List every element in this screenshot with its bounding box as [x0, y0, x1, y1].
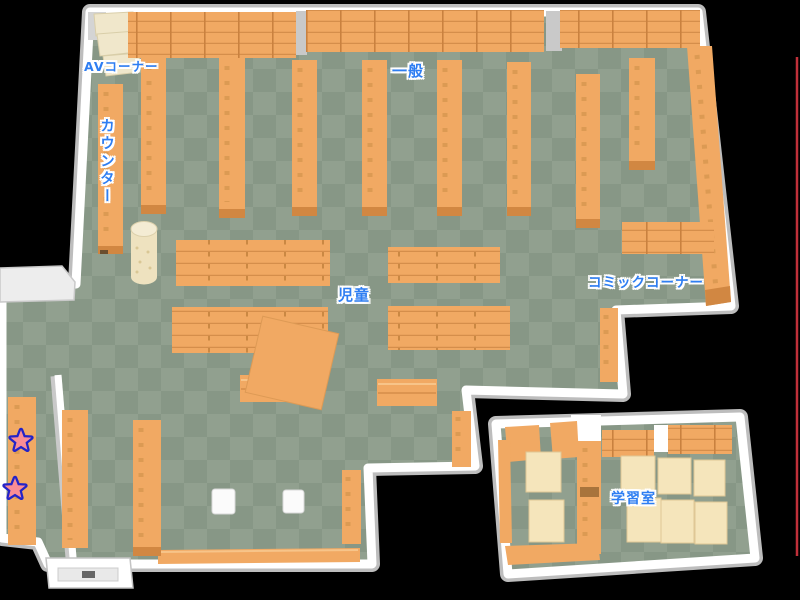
study-shelf-block — [602, 430, 654, 457]
study-table — [526, 452, 561, 492]
wall-bookshelf — [600, 308, 618, 382]
bookshelf-row — [133, 420, 161, 556]
bookshelf-row — [507, 62, 531, 216]
study-table — [529, 500, 564, 542]
bookshelf-row — [629, 58, 655, 170]
label-comic-corner: コミックコーナー — [588, 271, 704, 291]
activity-table — [245, 316, 339, 410]
study-room-divider — [577, 441, 601, 554]
stool — [283, 490, 304, 513]
bookshelf-row — [141, 58, 166, 214]
magazine-shelf — [8, 397, 36, 545]
label-general: 一般 — [392, 60, 424, 81]
children-shelf-block — [388, 247, 500, 283]
wall-corner-block — [0, 266, 75, 302]
wall-bookshelf-block — [128, 12, 296, 58]
bookshelf-row — [219, 58, 245, 218]
wall-face — [296, 11, 307, 55]
floor-map-canvas — [0, 0, 800, 600]
wall-bookshelf — [452, 411, 471, 467]
comic-shelf-block — [622, 222, 714, 254]
wall-bookshelf — [342, 470, 361, 544]
study-table — [695, 502, 727, 544]
children-shelf-block — [176, 240, 330, 286]
wall-shelf-strip — [158, 548, 360, 564]
library-floor-map: AVコーナー カウンター 一般 児童 コミックコーナー 学習室 — [0, 0, 800, 600]
label-av-corner: AVコーナー — [84, 56, 159, 75]
bench — [377, 379, 437, 406]
study-table — [658, 458, 691, 494]
study-table — [661, 500, 694, 543]
label-study-room: 学習室 — [611, 488, 656, 508]
label-counter: カウンター — [96, 118, 117, 206]
wall-bookshelf-block — [560, 10, 700, 48]
bookshelf-row — [292, 60, 317, 216]
bookshelf-row — [362, 60, 387, 216]
label-children: 児童 — [338, 284, 370, 305]
display-cylinder — [131, 222, 157, 285]
study-table — [694, 460, 725, 496]
wall-bookshelf-block — [306, 10, 544, 52]
stool — [212, 489, 235, 514]
study-shelf — [498, 440, 512, 543]
study-table — [621, 456, 655, 492]
entrance-door — [82, 571, 95, 578]
bookshelf-row — [576, 74, 600, 228]
bookshelf-row — [62, 410, 88, 548]
study-shelf-block — [668, 425, 732, 454]
wall-face — [546, 11, 562, 51]
entrance-vestibule — [46, 558, 133, 588]
bookshelf-row — [437, 60, 462, 216]
children-shelf-block — [388, 306, 510, 350]
